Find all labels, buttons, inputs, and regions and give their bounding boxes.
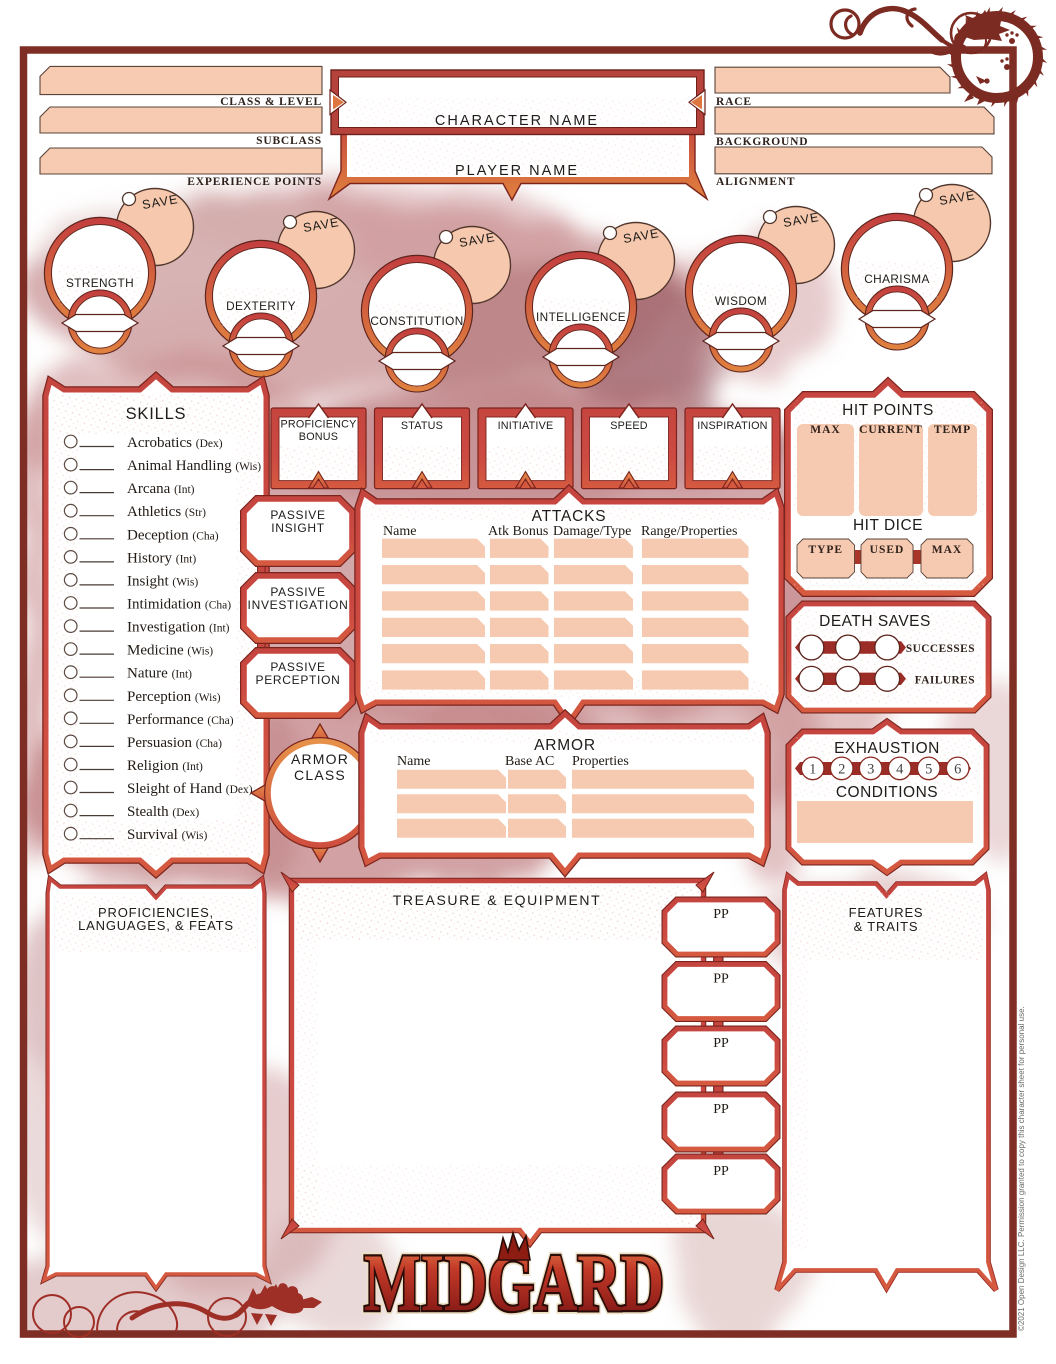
svg-text:FEATURES: FEATURES — [849, 905, 924, 920]
svg-text:& TRAITS: & TRAITS — [854, 919, 919, 934]
